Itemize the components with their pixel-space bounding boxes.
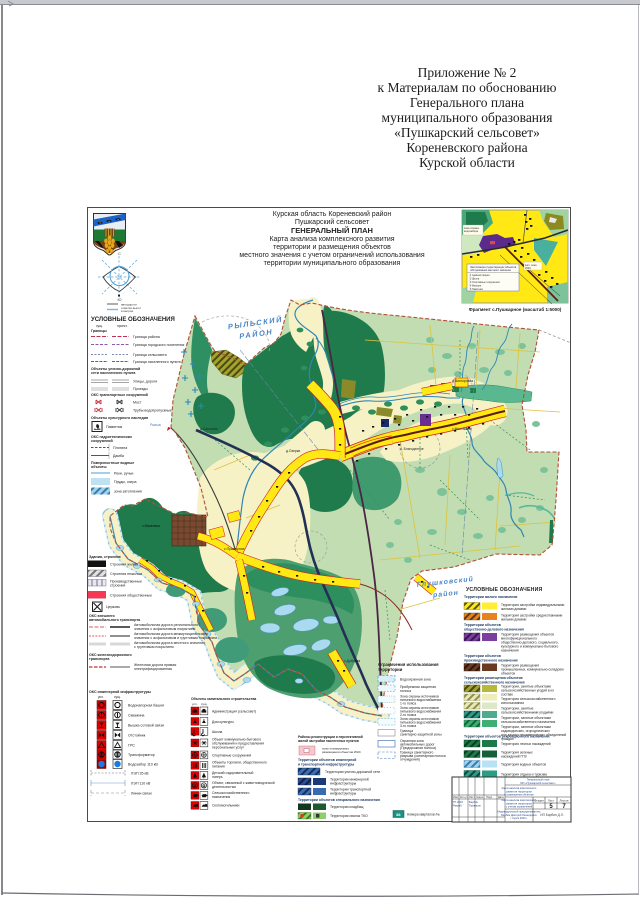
svg-text:х.Мостакино: х.Мостакино xyxy=(452,427,472,431)
svg-text:Пруды, озера: Пруды, озера xyxy=(114,480,136,484)
svg-text:ГЕНЕРАЛЬНЫЙ ПЛАН: ГЕНЕРАЛЬНЫЙ ПЛАН xyxy=(291,226,373,235)
svg-text:водозабора: водозабора xyxy=(464,229,479,233)
svg-text:Дамба: Дамба xyxy=(113,454,124,458)
svg-text:Изм.: Изм. xyxy=(453,795,459,799)
svg-text:Курской области: Курской области xyxy=(419,155,515,170)
svg-text:Кол.уч.: Кол.уч. xyxy=(460,795,469,799)
svg-text:УСЛОВНЫЕ ОБОЗНАЧЕНИЯ: УСЛОВНЫЕ ОБОЗНАЧЕНИЯ xyxy=(466,587,543,593)
svg-text:Территории кладбищ: Территории кладбищ xyxy=(330,805,364,809)
svg-text:г. Курск 2020 г.: г. Курск 2020 г. xyxy=(510,816,528,820)
svg-text:Территории объектов специально: Территории объектов специального назначе… xyxy=(298,798,380,802)
svg-text:Администрация (сельсовет): Администрация (сельсовет) xyxy=(212,710,256,714)
svg-text:Подп.: Подп. xyxy=(486,795,493,799)
svg-text:обслуживания местного значения: обслуживания местного значения xyxy=(470,268,511,272)
svg-text:х.Мазеевка: х.Мазеевка xyxy=(142,524,160,528)
svg-text:д.Озерки: д.Озерки xyxy=(286,449,300,453)
svg-text:объектов: объектов xyxy=(501,672,515,676)
svg-text:Территория водных объектов: Территория водных объектов xyxy=(501,763,546,767)
svg-text:Плотина: Плотина xyxy=(113,446,127,450)
svg-text:Спортивные сооружения: Спортивные сооружения xyxy=(212,754,251,758)
svg-text:Здания, строения: Здания, строения xyxy=(89,555,121,559)
svg-text:38: 38 xyxy=(396,812,401,817)
svg-text:питания: питания xyxy=(212,765,225,769)
svg-text:значения с асфальтовым и грунт: значения с асфальтовым и грунтовым покры… xyxy=(134,636,218,640)
svg-text:жилыми домами: жилыми домами xyxy=(501,618,526,622)
svg-text:Стадия: Стадия xyxy=(534,799,544,803)
svg-text:Проезды: Проезды xyxy=(133,387,148,391)
svg-text:Приложение № 2: Приложение № 2 xyxy=(418,65,517,80)
svg-text:Граница городского поселения: Граница городского поселения xyxy=(133,343,184,347)
svg-text:насаждений ГПЗ: насаждений ГПЗ xyxy=(501,755,527,759)
svg-text:полоса: полоса xyxy=(400,689,411,693)
svg-text:Строения нежилые: Строения нежилые xyxy=(110,572,142,576)
svg-text:Граница района: Граница района xyxy=(133,335,160,339)
svg-text:Водонапорная башня: Водонапорная башня xyxy=(128,704,164,708)
svg-text:Территории размещения объектов: Территории размещения объектов xyxy=(464,676,523,680)
svg-text:общественно-делового назначени: общественно-делового назначения xyxy=(464,628,524,632)
svg-text:Проверил: Проверил xyxy=(469,804,481,808)
svg-text:отчуждения): отчуждения) xyxy=(400,758,420,762)
svg-text:Территории объектов рекреацион: Территории объектов рекреационного назна… xyxy=(464,735,550,739)
svg-text:санитарно-защитной зоны: санитарно-защитной зоны xyxy=(400,733,442,737)
svg-text:персональных услуг: персональных услуг xyxy=(212,746,245,750)
svg-text:Граница населенного пункта: Граница населенного пункта xyxy=(133,360,181,364)
svg-text:производственного назначения: производственного назначения xyxy=(464,659,518,663)
svg-text:территории муниципального обра: территории муниципального образования xyxy=(264,259,401,267)
svg-text:проект.: проект. xyxy=(117,324,128,328)
svg-text:Лист: Лист xyxy=(469,795,475,799)
svg-text:значения с асфальтовым покрыти: значения с асфальтовым покрытием xyxy=(134,627,196,631)
svg-text:С: С xyxy=(118,251,121,256)
svg-text:Мост: Мост xyxy=(133,401,142,405)
svg-text:ЛЭП 110 кВ: ЛЭП 110 кВ xyxy=(131,782,151,786)
svg-text:Территории улично-дорожной сет: Территории улично-дорожной сети xyxy=(325,770,380,774)
svg-text:Граница сельсовета: Граница сельсовета xyxy=(133,353,167,357)
svg-text:Дом культуры: Дом культуры xyxy=(212,720,234,724)
svg-text:Трубы водопропускные: Трубы водопропускные xyxy=(133,409,172,413)
svg-text:Отстойник: Отстойник xyxy=(128,734,146,738)
svg-text:Карта анализа комплексного раз: Карта анализа комплексного развития xyxy=(269,236,394,243)
svg-text:усл.: усл. xyxy=(192,702,198,706)
svg-text:размещения объектов ИЖС: размещения объектов ИЖС xyxy=(322,750,362,754)
svg-text:составе: составе xyxy=(501,693,513,697)
svg-text:с грунтовым покрытием: с грунтовым покрытием xyxy=(134,645,174,649)
svg-text:ИП Барбин Д.Л.: ИП Барбин Д.Л. xyxy=(540,813,563,817)
svg-text:местного значения с учетом огр: местного значения с учетом ограничений и… xyxy=(239,251,424,259)
svg-text:и транспортной инфраструктуры: и транспортной инфраструктуры xyxy=(298,763,354,767)
svg-text:д.Сапогово: д.Сапогово xyxy=(200,427,218,431)
svg-text:Территория лесных насаждений: Территория лесных насаждений xyxy=(501,742,551,746)
svg-text:сельскохозяйственными угодьями: сельскохозяйственными угодьями xyxy=(501,711,553,715)
svg-text:ГРС: ГРС xyxy=(128,744,135,748)
svg-text:№док.: №док. xyxy=(476,796,484,799)
svg-text:сущ.: сущ. xyxy=(114,695,121,699)
svg-text:жилыми домами: жилыми домами xyxy=(501,607,526,611)
svg-text:Строения жилые: Строения жилые xyxy=(110,563,138,567)
svg-text:назначения: назначения xyxy=(212,795,230,799)
svg-text:5 Памятник: 5 Памятник xyxy=(470,288,484,291)
svg-text:3-го пояса: 3-го пояса xyxy=(400,724,416,728)
svg-text:Памятник: Памятник xyxy=(106,425,123,429)
svg-text:Рыльск: Рыльск xyxy=(150,423,162,427)
svg-text:с.Пушкарное: с.Пушкарное xyxy=(224,547,245,551)
svg-text:муниципального образования: муниципального образования xyxy=(382,110,553,125)
svg-text:сельскохозяйственного назначен: сельскохозяйственного назначения xyxy=(501,720,555,724)
svg-text:д.Викторовка: д.Викторовка xyxy=(452,379,473,383)
svg-text:Номера кварталов /№: Номера кварталов /№ xyxy=(407,813,440,817)
svg-text:инфраструктуры: инфраструктуры xyxy=(330,792,357,796)
svg-text:с учетом ограничений: с учетом ограничений xyxy=(506,805,533,809)
svg-text:Барбин: Барбин xyxy=(469,800,479,804)
svg-text:электрифицированная: электрифицированная xyxy=(134,667,172,671)
svg-text:сети населенного пункта: сети населенного пункта xyxy=(91,371,136,375)
svg-text:Школа: Школа xyxy=(212,730,222,734)
svg-text:деятельностью: деятельностью xyxy=(212,785,237,789)
svg-text:1-го пояса: 1-го пояса xyxy=(400,702,416,706)
svg-text:Реки, ручьи: Реки, ручьи xyxy=(114,472,133,476)
svg-text:Территория отдыха и туризма: Территория отдыха и туризма xyxy=(501,773,547,777)
svg-text:инфраструктуры: инфраструктуры xyxy=(330,782,357,786)
svg-text:строения: строения xyxy=(110,584,125,588)
svg-text:сущ.: сущ. xyxy=(201,702,207,706)
svg-text:Вышка сотовой связи: Вышка сотовой связи xyxy=(128,724,164,728)
svg-text:Скважина: Скважина xyxy=(128,714,144,718)
svg-text:Фрагмент с.Пушкарное (масштаб: Фрагмент с.Пушкарное (масштаб 1:5000) xyxy=(469,306,562,312)
svg-text:территории и размещения объект: территории и размещения объектов xyxy=(273,243,391,251)
svg-text:Кореневского района: Кореневского района xyxy=(406,140,527,155)
svg-text:УСЛОВНЫЕ ОБОЗНАЧЕНИЯ: УСЛОВНЫЕ ОБОЗНАЧЕНИЯ xyxy=(91,317,175,323)
svg-text:и размещения объектов: и размещения объектов xyxy=(504,793,534,797)
svg-text:х.Дубрава: х.Дубрава xyxy=(344,659,360,663)
svg-text:Водоохранная зона: Водоохранная зона xyxy=(400,678,431,682)
svg-text:Лист: Лист xyxy=(548,799,555,803)
svg-text:сущ.: сущ. xyxy=(96,324,103,328)
svg-text:Границы: Границы xyxy=(91,329,107,333)
svg-text:использования: использования xyxy=(501,701,524,705)
svg-text:Разраб.: Разраб. xyxy=(453,804,463,808)
svg-text:Улицы, дороги: Улицы, дороги xyxy=(133,380,157,384)
svg-text:к Материалам по обоснованию: к Материалам по обоснованию xyxy=(378,80,557,95)
svg-text:Пушкарский сельсовет: Пушкарский сельсовет xyxy=(295,218,370,226)
svg-text:ИЖС: ИЖС xyxy=(525,266,531,270)
svg-text:Территории объектов: Территории объектов xyxy=(464,654,501,658)
svg-text:ЛЭП 35 кВ: ЛЭП 35 кВ xyxy=(131,772,149,776)
svg-text:Строения общественные: Строения общественные xyxy=(110,594,152,598)
svg-text:объекты: объекты xyxy=(91,465,107,469)
svg-text:Территории объектов инженерной: Территории объектов инженерной xyxy=(298,758,356,762)
svg-text:Объекты капитального строитель: Объекты капитального строительства xyxy=(191,697,256,701)
svg-text:Церковь: Церковь xyxy=(106,605,120,609)
svg-text:ОКС инженерной инфраструктуры: ОКС инженерной инфраструктуры xyxy=(89,690,151,694)
svg-text:Ю: Ю xyxy=(118,297,122,302)
svg-text:Трансформатор: Трансформатор xyxy=(128,753,155,757)
svg-text:ОКС транспортных сооружений: ОКС транспортных сооружений xyxy=(91,393,148,397)
svg-text:автомобильного транспорта: автомобильного транспорта xyxy=(89,618,141,622)
svg-text:Территории жилого назначения: Территории жилого назначения xyxy=(464,595,517,599)
svg-text:«Пушкарский сельсовет»: «Пушкарский сельсовет» xyxy=(394,125,540,140)
svg-text:Территории объектов: Территории объектов xyxy=(464,623,501,627)
svg-text:территории: территории xyxy=(378,667,403,672)
svg-text:Объекты культурного наследия: Объекты культурного наследия xyxy=(91,416,148,420)
svg-text:сооружений: сооружений xyxy=(91,439,113,443)
svg-text:с. Благодатное: с. Благодатное xyxy=(400,447,424,451)
svg-text:Территория свалок ТКО: Территория свалок ТКО xyxy=(330,814,368,818)
svg-text:Скотомогильники: Скотомогильники xyxy=(212,804,240,808)
svg-text:Генерального плана: Генерального плана xyxy=(410,95,524,110)
svg-text:лагерь: лагерь xyxy=(212,775,223,779)
svg-text:Листов: Листов xyxy=(559,799,569,803)
svg-text:Курская область Кореневский ра: Курская область Кореневский район xyxy=(273,210,392,218)
svg-text:зона затопления: зона затопления xyxy=(114,490,142,494)
svg-text:в метрах: в метрах xyxy=(121,309,134,313)
svg-text:ГП 2020: ГП 2020 xyxy=(453,800,463,804)
svg-text:Водозабор 110 кВ: Водозабор 110 кВ xyxy=(128,763,158,767)
svg-text:МО «Пушкарский сельсовет»: МО «Пушкарский сельсовет» xyxy=(520,781,556,785)
svg-text:жилой застройки населенных пун: жилой застройки населенных пунктов xyxy=(297,739,359,743)
svg-text:назначения: назначения xyxy=(501,649,519,653)
svg-text:Линии связи: Линии связи xyxy=(131,792,152,796)
svg-text:транспорта: транспорта xyxy=(89,657,110,661)
svg-text:(Придорожная полоса): (Придорожная полоса) xyxy=(400,746,436,750)
svg-text:усл.: усл. xyxy=(98,695,104,699)
